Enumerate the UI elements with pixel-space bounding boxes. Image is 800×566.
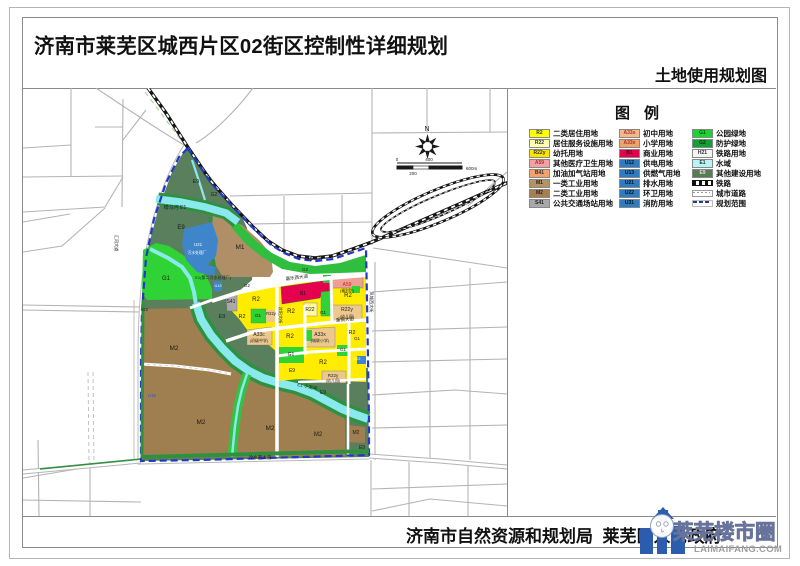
svg-text:E9: E9 <box>289 368 295 374</box>
svg-text:M2: M2 <box>265 425 274 432</box>
svg-text:R2: R2 <box>252 297 260 303</box>
svg-text:M2: M2 <box>169 345 178 352</box>
svg-text:(城联小学): (城联小学) <box>311 337 330 343</box>
svg-text:U22: U22 <box>354 357 361 361</box>
svg-text:600m: 600m <box>466 166 478 171</box>
svg-text:汶水西大道: 汶水西大道 <box>249 454 272 461</box>
svg-text:(福利院): (福利院) <box>340 288 355 293</box>
svg-text:(初级中学): (初级中学) <box>250 337 269 343</box>
svg-text:U13: U13 <box>215 284 222 288</box>
svg-text:E1(第二污水处理厂): E1(第二污水处理厂) <box>195 274 231 280</box>
svg-text:R2: R2 <box>319 360 327 366</box>
svg-text:R22y: R22y <box>341 307 353 313</box>
svg-text:G2: G2 <box>244 283 251 288</box>
svg-text:R22: R22 <box>305 307 314 313</box>
svg-text:R22y: R22y <box>266 311 277 316</box>
svg-text:G1: G1 <box>255 313 262 318</box>
svg-text:E9: E9 <box>193 179 200 185</box>
svg-text:M2: M2 <box>353 430 360 436</box>
svg-text:E9: E9 <box>359 445 365 451</box>
svg-text:凤城西大街: 凤城西大街 <box>368 292 375 313</box>
svg-text:400: 400 <box>425 157 433 162</box>
svg-text:M2: M2 <box>196 419 205 426</box>
svg-text:G1: G1 <box>354 336 361 341</box>
svg-text:G1: G1 <box>320 310 327 315</box>
svg-text:R2: R2 <box>344 293 352 299</box>
svg-text:U21: U21 <box>194 242 203 247</box>
svg-text:B1: B1 <box>300 291 306 297</box>
svg-text:200: 200 <box>409 171 417 176</box>
svg-text:0: 0 <box>396 157 399 162</box>
svg-text:G1: G1 <box>162 276 171 282</box>
svg-text:U15: U15 <box>148 393 156 398</box>
svg-text:A59: A59 <box>343 282 352 288</box>
svg-text:G1: G1 <box>288 352 295 358</box>
svg-text:E9: E9 <box>320 390 326 396</box>
svg-text:G1: G1 <box>340 347 347 352</box>
svg-text:汇河大道: 汇河大道 <box>113 235 120 253</box>
svg-text:E9: E9 <box>177 225 185 231</box>
svg-text:S41: S41 <box>227 299 236 305</box>
svg-text:E9: E9 <box>219 314 226 320</box>
svg-text:螃马河 E1: 螃马河 E1 <box>164 204 187 211</box>
svg-text:N: N <box>424 126 429 133</box>
svg-text:汶阳大街: 汶阳大街 <box>277 307 284 324</box>
svg-text:M2: M2 <box>314 432 323 438</box>
svg-text:R2: R2 <box>287 309 295 315</box>
svg-text:R2: R2 <box>286 334 294 340</box>
svg-text:莱芜楼市圈: 莱芜楼市圈 <box>673 520 776 544</box>
svg-text:G2: G2 <box>302 267 309 272</box>
svg-text:中泰铁路: 中泰铁路 <box>304 254 323 264</box>
svg-text:G2: G2 <box>142 307 149 312</box>
svg-text:G2: G2 <box>211 192 218 198</box>
svg-text:M1: M1 <box>235 244 244 251</box>
svg-text:污水处理厂: 污水处理厂 <box>188 250 207 255</box>
svg-text:(幼儿园): (幼儿园) <box>326 377 341 383</box>
svg-text:LAIMAIFANG.COM: LAIMAIFANG.COM <box>694 544 782 555</box>
svg-text:R2: R2 <box>238 314 245 320</box>
